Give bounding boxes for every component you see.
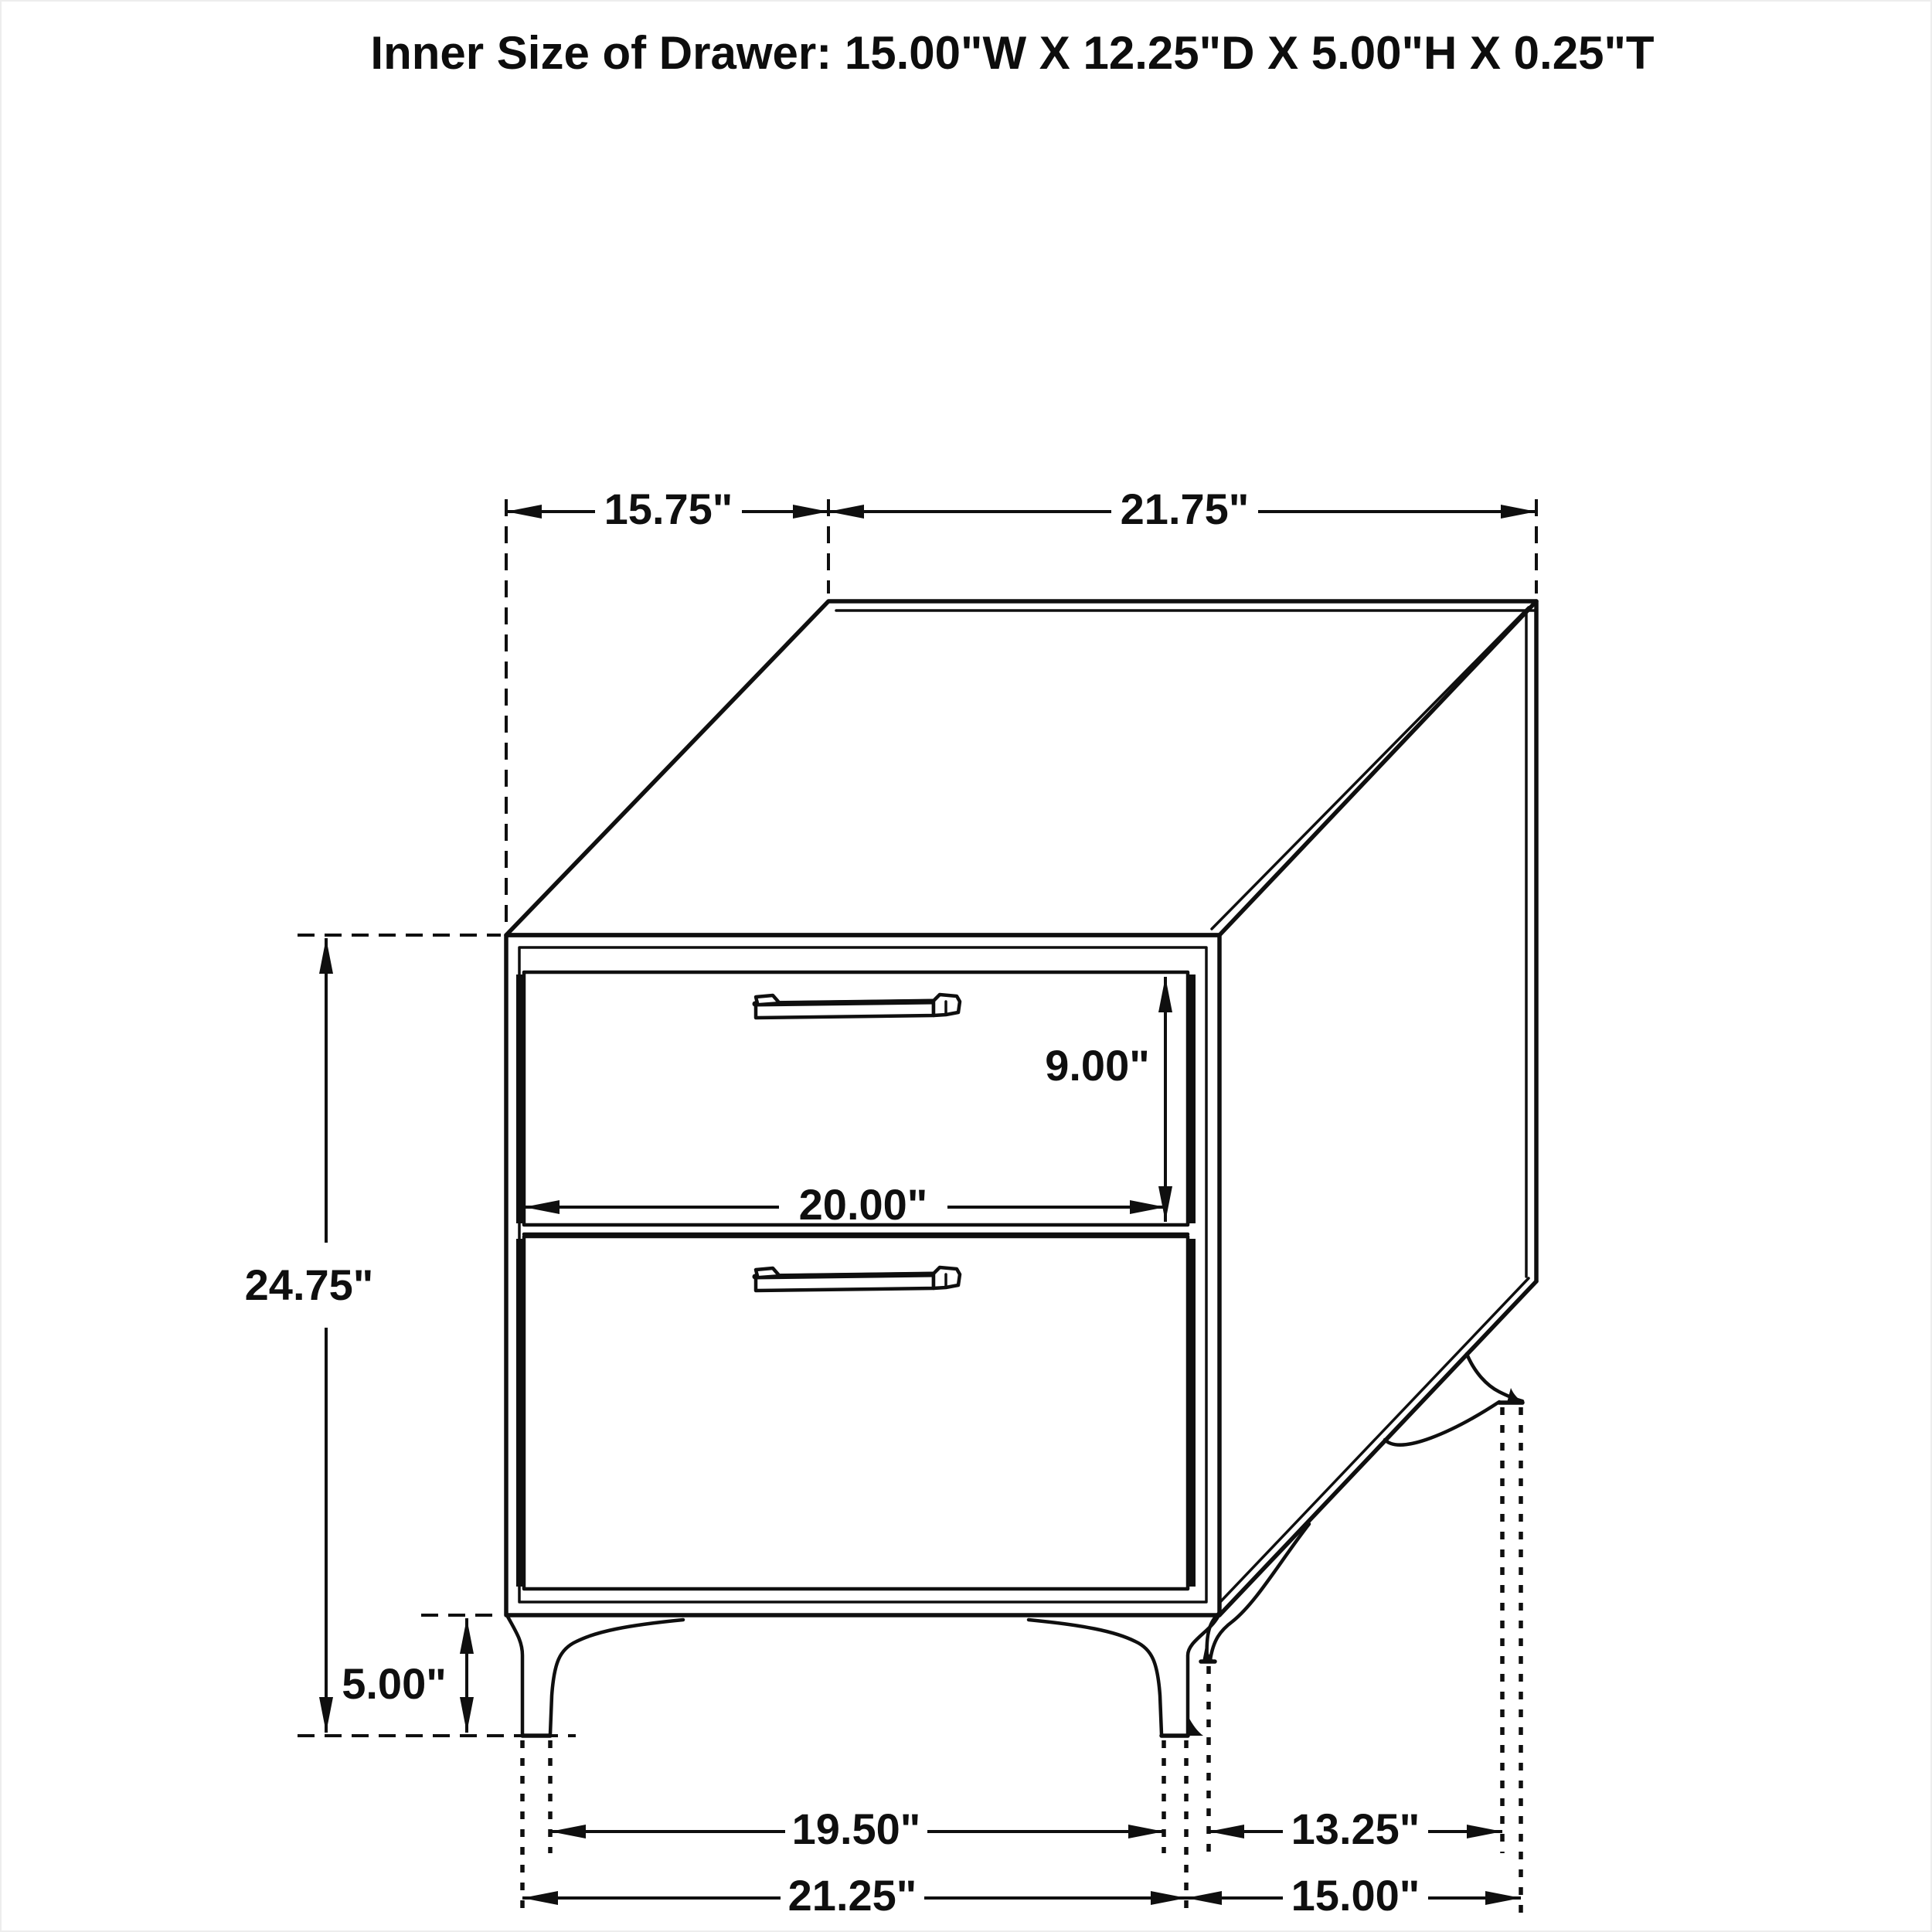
nightstand-dimension-diagram: 15.75" 21.75" 24.75" 5.00" 9.00" 20.00" — [0, 0, 1932, 1932]
drawer-1-right-gap-shadow — [1188, 975, 1196, 1223]
dim-drawer-width: 20.00" — [524, 1180, 1165, 1229]
cabinet-top-face — [506, 601, 1536, 935]
dim-leg-height: 5.00" — [342, 1618, 467, 1733]
dim-side-feet-inner-label: 13.25" — [1291, 1804, 1420, 1853]
drawer-1-left-gap-shadow — [516, 975, 524, 1223]
dim-front-feet-inner-label: 19.50" — [792, 1804, 921, 1853]
dim-drawer-height: 9.00" — [1045, 977, 1165, 1222]
dim-side-feet-outer-label: 15.00" — [1291, 1871, 1420, 1920]
dim-side-feet-outer-span: 15.00" — [1186, 1871, 1521, 1920]
dim-drawer-width-label: 20.00" — [799, 1180, 928, 1229]
top-face-outline — [506, 601, 1536, 935]
dim-top-width-label: 21.75" — [1121, 485, 1250, 533]
back-right-foot-shadow — [1507, 1388, 1523, 1403]
dim-side-feet-inner-span: 13.25" — [1209, 1804, 1502, 1853]
front-right-leg-inner-flare — [1029, 1620, 1162, 1734]
drawer-2-right-gap-shadow — [1188, 1239, 1196, 1587]
drawer-1-handle — [755, 995, 960, 1018]
dim-top-depth: 15.75" — [506, 485, 828, 533]
cabinet-right-face — [1219, 601, 1536, 1615]
dim-front-feet-outer-span: 21.25" — [522, 1871, 1186, 1920]
dim-top-width: 21.75" — [828, 485, 1536, 533]
front-right-leg — [1029, 1617, 1218, 1736]
drawer-2-left-gap-shadow — [516, 1239, 524, 1587]
dim-front-feet-outer-label: 21.25" — [788, 1871, 917, 1920]
handle-bar-top-edge — [755, 1002, 934, 1004]
front-right-leg-outer-edge — [1188, 1617, 1218, 1734]
front-left-leg-outer-edge — [508, 1617, 522, 1734]
dim-drawer-height-label: 9.00" — [1045, 1041, 1150, 1090]
dim-overall-height-label: 24.75" — [245, 1260, 374, 1309]
dim-leg-height-label: 5.00" — [342, 1659, 447, 1708]
front-left-leg-inner-flare — [550, 1620, 683, 1734]
right-face-bottom-edge — [1219, 1281, 1536, 1615]
front-right-foot-shadow — [1188, 1716, 1203, 1736]
diagram-page: Inner Size of Drawer: 15.00"W X 12.25"D … — [0, 0, 1932, 1932]
dim-top-depth-label: 15.75" — [604, 485, 733, 533]
handle-bar-top-edge — [755, 1274, 934, 1277]
right-face-bottom-edge-inner — [1219, 1278, 1529, 1603]
side-bracket-right-flare — [1210, 1524, 1309, 1660]
cabinet — [506, 601, 1536, 1736]
drawer-2-handle — [755, 1267, 960, 1291]
top-face-right-edge-inner — [1212, 607, 1529, 929]
dim-overall-height: 24.75" — [245, 938, 374, 1733]
front-left-leg — [508, 1617, 683, 1736]
dim-front-feet-inner-span: 19.50" — [550, 1804, 1164, 1853]
front-right-leg-side-bracket — [1201, 1524, 1309, 1662]
